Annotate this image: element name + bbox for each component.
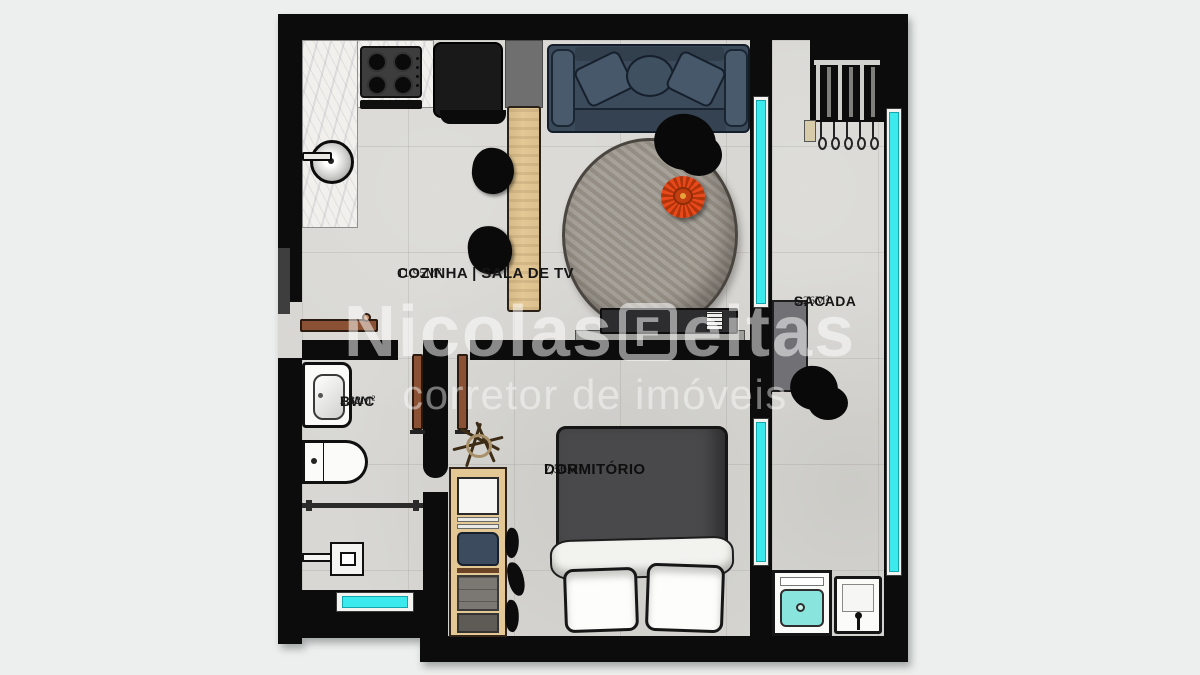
kitchen-cabinet [505, 40, 543, 108]
wall-bathroom-bedroom [423, 492, 448, 638]
desk-chair [808, 386, 848, 420]
shower-head [330, 542, 364, 576]
hanger [833, 122, 835, 138]
rack-rod [827, 67, 831, 117]
toilet-button [311, 458, 317, 464]
hanger [820, 122, 822, 138]
entry-door-frame [278, 248, 290, 314]
rack-rod [849, 67, 853, 117]
stove-cooktop [360, 46, 422, 98]
stove-burner [393, 52, 413, 72]
rack-rod [816, 64, 820, 120]
bed-pillow [563, 567, 639, 634]
laundry-sink [772, 570, 832, 636]
flower-dot [680, 193, 686, 199]
stove-burner [393, 75, 413, 95]
refrigerator [433, 42, 503, 118]
room-area: 7,56M² [544, 462, 582, 477]
hanger [846, 122, 848, 138]
bathroom-door [412, 354, 423, 430]
hanging-garment [504, 599, 521, 632]
entry-door-handle [362, 313, 371, 322]
vanity-faucet [318, 393, 323, 398]
floor-plan-page: COZINHA | SALA DE TV 11,95M² SACADA 6,26… [0, 0, 1200, 675]
sofa [547, 44, 750, 133]
toilet-bowl [324, 440, 368, 484]
wall-bottom [420, 636, 908, 662]
stove-burner [367, 75, 387, 95]
clothes-hangers [818, 122, 880, 160]
stove-knob [416, 66, 419, 69]
kitchen-faucet [302, 152, 332, 161]
bed-pillow [645, 563, 725, 634]
wardrobe-shelf [457, 568, 499, 573]
bedroom-window [756, 422, 766, 562]
washer-tap-icon [857, 617, 860, 630]
hanging-garment [503, 527, 522, 559]
shower-head-inner [340, 552, 356, 566]
hanging-clothes [505, 528, 529, 638]
bathroom-window [342, 596, 408, 608]
laundry-sink-ledge [780, 577, 824, 586]
wall-door-stub [423, 340, 448, 478]
open-wardrobe [449, 467, 507, 637]
hanger [859, 122, 861, 138]
wall-left [278, 358, 302, 644]
washer-lid [842, 584, 874, 612]
storage-box [804, 120, 816, 142]
red-flower-decor [661, 176, 705, 218]
wardrobe-shelf-linens [457, 477, 499, 515]
wardrobe-shelf [457, 517, 499, 522]
wardrobe-shelf [457, 524, 499, 529]
laundry-sink-drain [796, 603, 805, 612]
hanger [872, 122, 874, 138]
stove-knob [416, 75, 419, 78]
wardrobe-folded-clothes [457, 532, 499, 566]
black-pouf [676, 134, 722, 176]
balcony-window [889, 112, 899, 572]
drying-rack [814, 64, 880, 122]
kitchen-counter-left [302, 40, 358, 228]
twig-decor [450, 418, 508, 474]
living-window [756, 100, 766, 304]
rack-rod [838, 64, 842, 120]
stove-knob [416, 57, 419, 60]
room-area: 2,82M² [340, 394, 375, 408]
shower-partition [302, 503, 423, 508]
stove-knob [416, 84, 419, 87]
rack-rod [860, 64, 864, 120]
wardrobe-drawers [457, 575, 499, 611]
room-area: 6,26M² [794, 294, 829, 308]
refrigerator-base [440, 110, 506, 124]
stove-burner [367, 52, 387, 72]
sofa-armrest [551, 49, 575, 127]
wardrobe-drawer [457, 613, 499, 633]
apartment-floor-plan: COZINHA | SALA DE TV 11,95M² SACADA 6,26… [278, 14, 908, 662]
sofa-armrest [724, 49, 748, 127]
hanging-garment [506, 561, 526, 597]
wall-interior [470, 340, 750, 360]
sofa-cushion [626, 55, 674, 97]
rack-rod [871, 67, 875, 117]
counter-edge [360, 100, 422, 109]
basket-ring [466, 434, 492, 458]
room-area: 11,95M² [397, 266, 441, 281]
washing-machine [834, 576, 882, 634]
wall-interior [302, 340, 398, 360]
tv-set [706, 311, 723, 331]
